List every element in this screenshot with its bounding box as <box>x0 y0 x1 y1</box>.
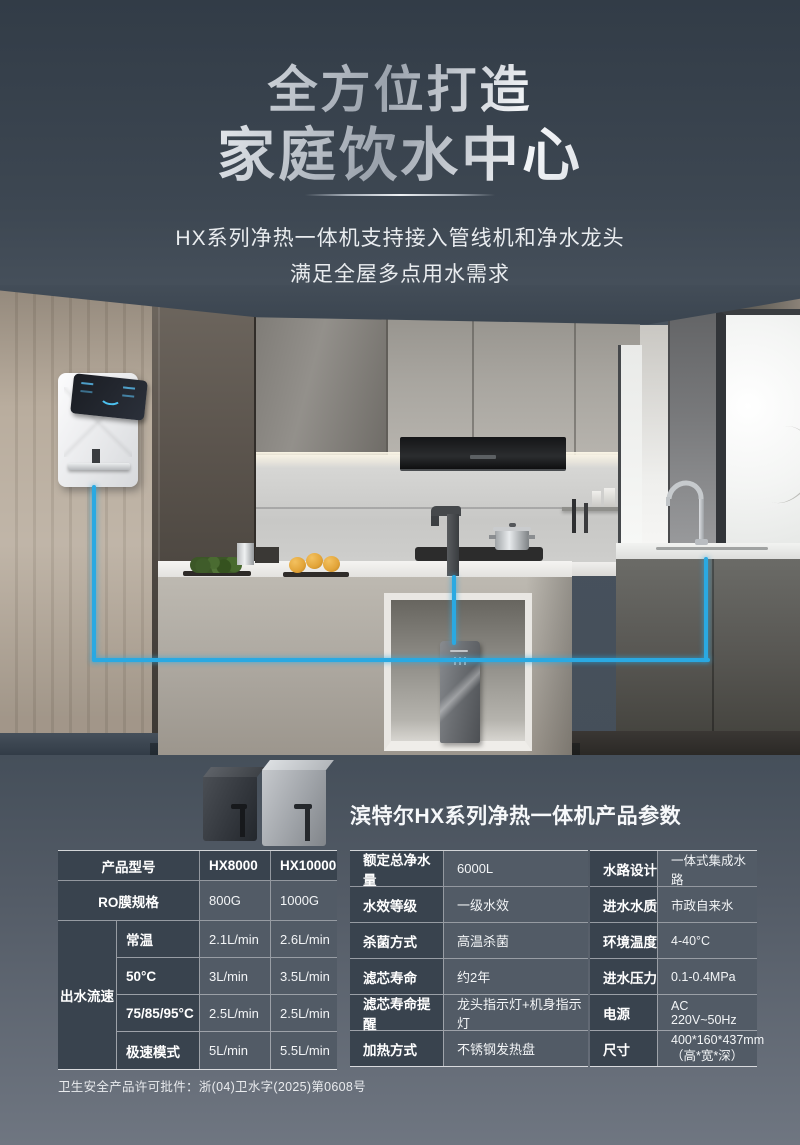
spec-cell-value: 5L/min <box>200 1032 270 1069</box>
spec-cell-label: 进水压力 <box>590 959 657 994</box>
dispenser-screen <box>70 373 148 421</box>
spec-section-title: 滨特尔HX系列净热一体机产品参数 <box>350 800 681 830</box>
spec-cell-value: 一体式集成水路 <box>658 851 757 886</box>
spec-cell-value: 约2年 <box>444 959 588 994</box>
spec-cell-value: 2.5L/min <box>271 995 337 1031</box>
spec-header-model1: HX8000 <box>200 851 270 880</box>
spec-cell-value: 1000G <box>271 881 337 920</box>
hero-divider <box>305 194 495 196</box>
side-window <box>618 345 642 543</box>
spec-cell-value: 一级水效 <box>444 887 588 922</box>
spec-cell-label: 杀菌方式 <box>350 923 443 958</box>
hanging-utensil <box>572 499 576 533</box>
spec-cell-value: 2.1L/min <box>200 921 270 957</box>
sink <box>656 547 768 550</box>
pot-handle <box>528 535 535 539</box>
pot-handle <box>489 535 496 539</box>
spec-cell-label: 50°C <box>117 958 199 994</box>
range-hood <box>400 437 566 471</box>
spec-cell-label: 加热方式 <box>350 1031 443 1066</box>
spec-cell-label: 进水水质 <box>590 887 657 922</box>
spec-cell-value: 5.5L/min <box>271 1032 337 1069</box>
spec-cell-value: 3L/min <box>200 958 270 994</box>
spec-header-label: 产品型号 <box>58 851 199 880</box>
spec-cell-label: 环境温度 <box>590 923 657 958</box>
spec-cell-value: 龙头指示灯+机身指示灯 <box>444 995 588 1030</box>
water-line-from-dispenser <box>92 485 96 662</box>
spec-cell-value: 市政自来水 <box>658 887 757 922</box>
hero-subtitle-line2: 满足全屋多点用水需求 <box>0 258 800 288</box>
island-faucet <box>447 514 459 576</box>
fruit-tray <box>283 572 349 577</box>
floor-right <box>570 731 800 755</box>
steel-pot <box>495 530 529 550</box>
product-thumb-dark <box>203 775 257 841</box>
under-sink-purifier <box>440 641 480 743</box>
product-top-face <box>262 760 334 770</box>
dispenser-spout <box>92 449 100 463</box>
dispenser-tray <box>68 463 130 470</box>
spec-cell-value: 高温杀菌 <box>444 923 588 958</box>
chrome-faucet-base <box>695 539 708 545</box>
license-text: 卫生安全产品许可批件：浙(04)卫水字(2025)第0608号 <box>58 1076 366 1095</box>
spec-table-performance: 额定总净水量 6000L 水效等级 一级水效 杀菌方式 高温杀菌 滤芯寿命 约2… <box>350 850 588 1067</box>
hero-subtitle-line1: HX系列净热一体机支持接入管线机和净水龙头 <box>0 222 800 252</box>
spec-cell-value: 不锈钢发热盘 <box>444 1031 588 1066</box>
base-cabinets-right <box>616 559 800 731</box>
hero-section: 全方位打造 家庭饮水中心 HX系列净热一体机支持接入管线机和净水龙头 满足全屋多… <box>0 0 800 290</box>
water-line-horizontal <box>92 658 710 662</box>
spec-cell-value: 2.5L/min <box>200 995 270 1031</box>
water-line-to-island-faucet <box>452 575 456 645</box>
window <box>716 309 800 547</box>
steel-cup <box>237 543 254 565</box>
product-faucet-icon <box>240 805 245 837</box>
chrome-faucet-spout <box>666 497 670 506</box>
spec-cell-label: 额定总净水量 <box>350 851 443 886</box>
spec-cell-label: 电源 <box>590 995 657 1030</box>
spec-cell-value: 6000L <box>444 851 588 886</box>
product-poster: 全方位打造 家庭饮水中心 HX系列净热一体机支持接入管线机和净水龙头 满足全屋多… <box>0 0 800 1145</box>
spec-cell-label: 75/85/95°C <box>117 995 199 1031</box>
wood-wall <box>0 285 152 755</box>
product-thumb-silver <box>262 768 326 846</box>
spec-table-installation: 水路设计 一体式集成水路 进水水质 市政自来水 环境温度 4-40°C 进水压力… <box>590 850 757 1067</box>
spec-header-model2: HX10000 <box>271 851 337 880</box>
spec-cell-value: 400*160*437mm （高*宽*深） <box>658 1031 757 1066</box>
product-faucet-icon <box>305 805 310 841</box>
spec-cell-value: 4-40°C <box>658 923 757 958</box>
spec-cell-value: 0.1-0.4MPa <box>658 959 757 994</box>
spec-cell-label: RO膜规格 <box>58 881 199 920</box>
hanging-utensil <box>584 503 588 533</box>
orange-fruit <box>289 557 306 573</box>
spice-jar <box>604 488 615 507</box>
orange-fruit <box>323 556 340 572</box>
spec-cell-label: 滤芯寿命 <box>350 959 443 994</box>
spec-cell-label: 尺寸 <box>590 1031 657 1066</box>
water-line-to-chrome-faucet <box>704 557 708 661</box>
spec-cell-label: 水效等级 <box>350 887 443 922</box>
spec-cell-value: 800G <box>200 881 270 920</box>
cutting-board <box>255 547 279 563</box>
spec-cell-label: 滤芯寿命提醒 <box>350 995 443 1030</box>
spec-table-models: 产品型号 HX8000 HX10000 RO膜规格 800G 1000G 出水流… <box>58 850 337 1070</box>
sink-counter <box>616 543 800 559</box>
orange-fruit <box>306 553 323 569</box>
spec-cell-value: 2.6L/min <box>271 921 337 957</box>
spec-group-label: 出水流速 <box>58 921 116 1069</box>
spec-cell-value: 3.5L/min <box>271 958 337 994</box>
pot-lid <box>493 527 531 531</box>
hero-title-line2: 家庭饮水中心 <box>0 108 800 192</box>
spec-cell-label: 水路设计 <box>590 851 657 886</box>
spice-jar <box>592 491 601 507</box>
spec-cell-value: AC 220V~50Hz <box>658 995 757 1030</box>
kitchen-photo <box>0 285 800 755</box>
pot-knob <box>509 523 516 527</box>
herbs <box>190 557 242 573</box>
spec-cell-label: 极速模式 <box>117 1032 199 1069</box>
product-top-face <box>203 767 265 777</box>
spec-cell-label: 常温 <box>117 921 199 957</box>
lit-wall <box>640 325 670 565</box>
